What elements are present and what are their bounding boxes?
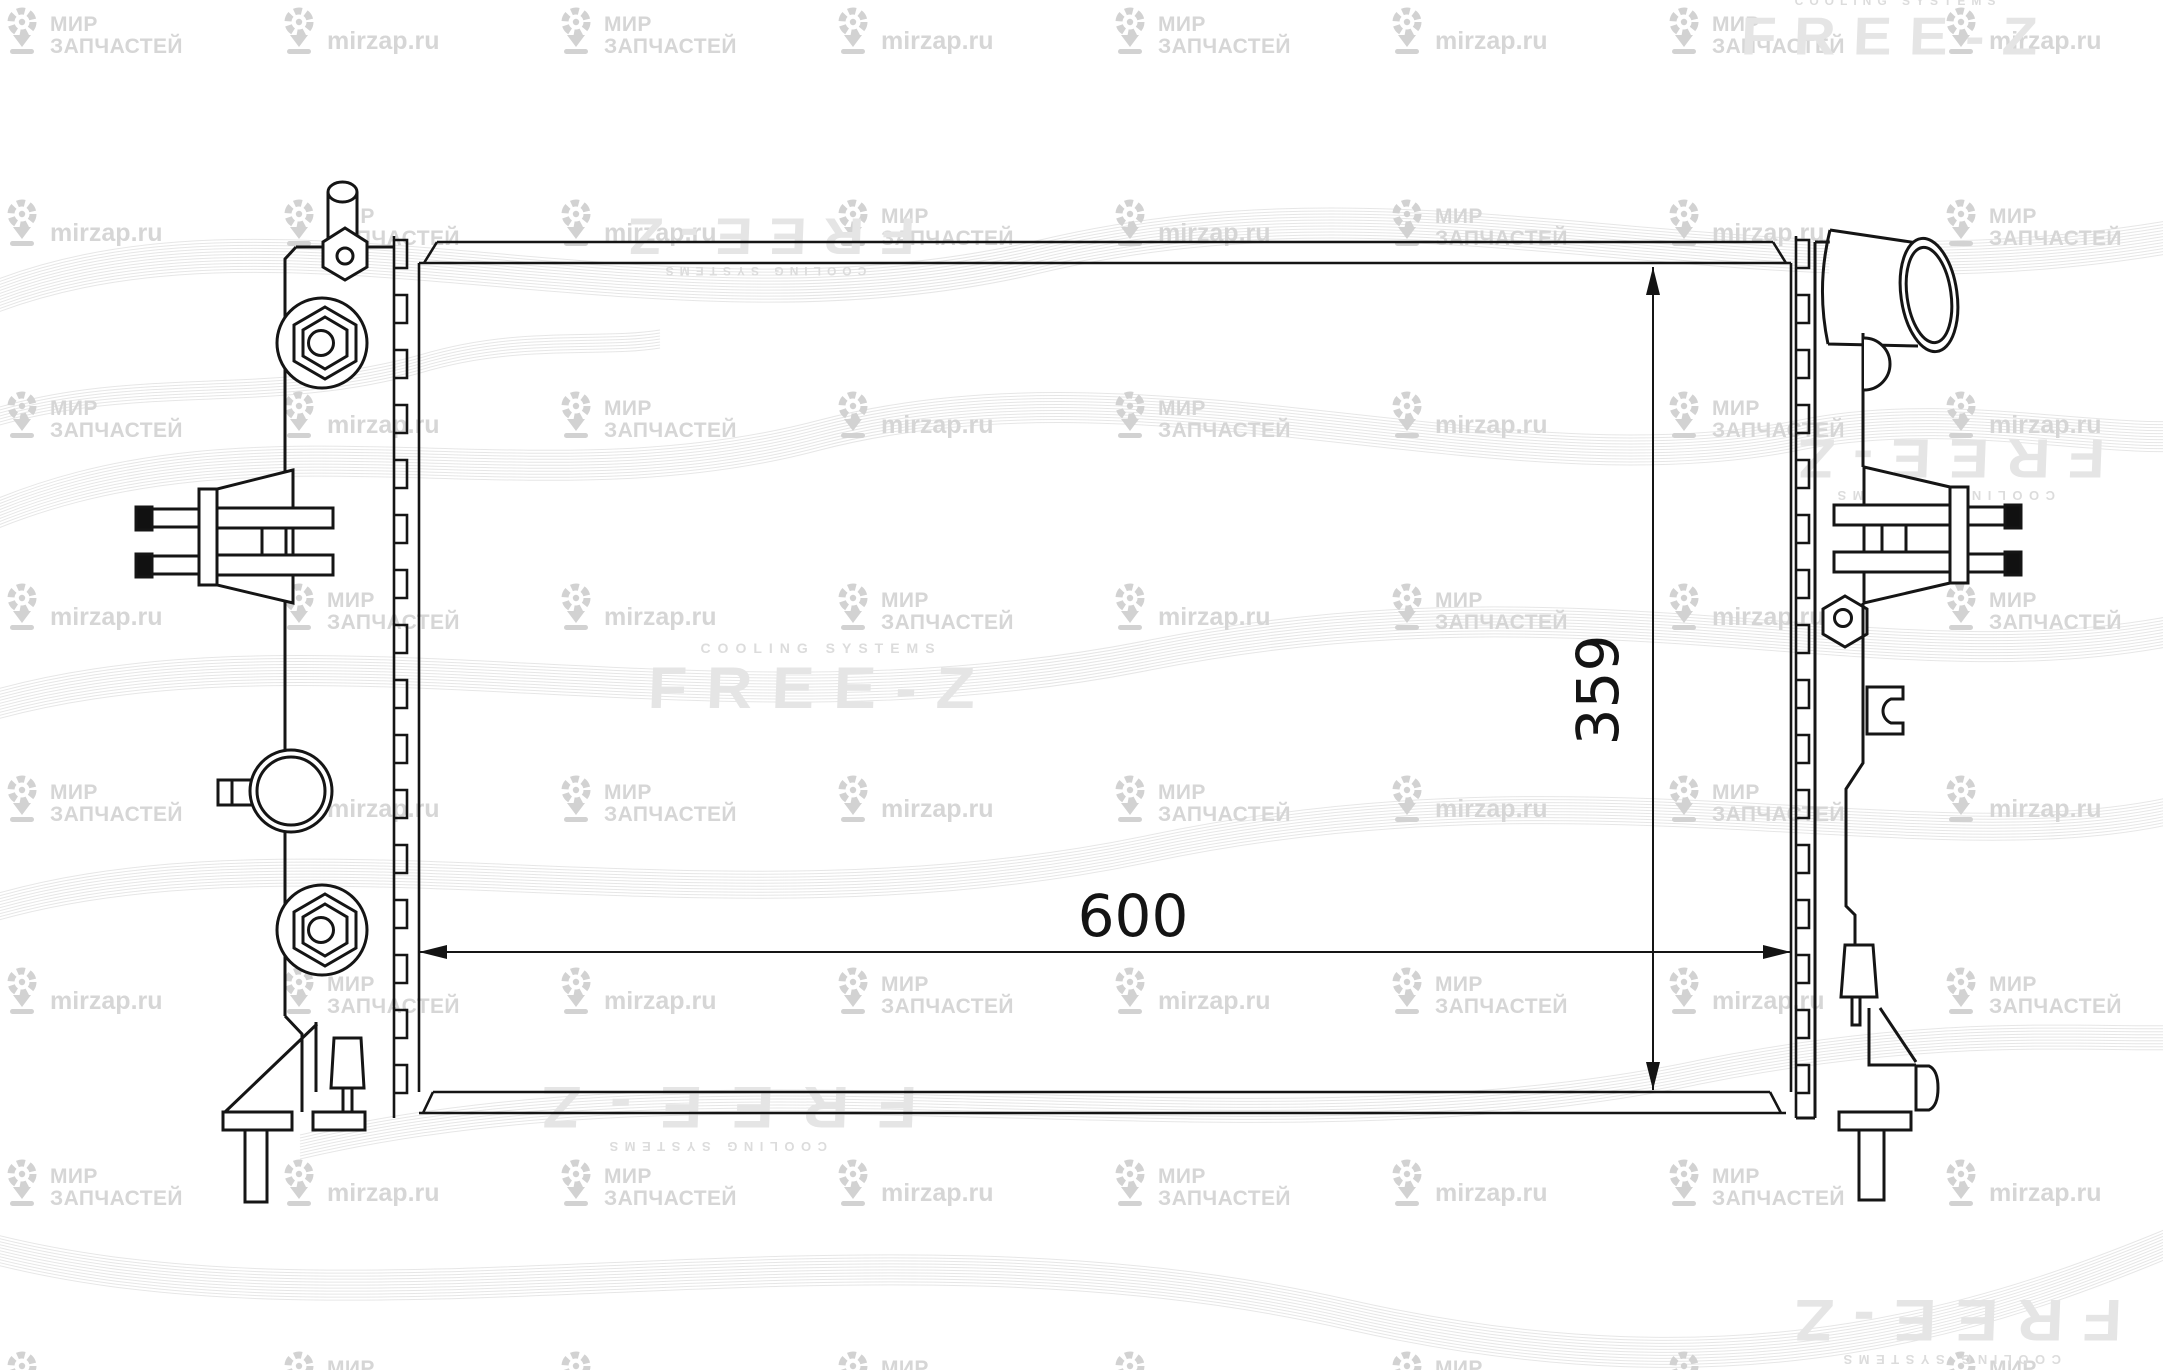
height-dimension: 359: [1564, 267, 1660, 1090]
core-left-crimp-teeth: [394, 240, 407, 1093]
width-dimension: 600: [419, 882, 1791, 959]
right-pipe-lower-tip: [2005, 552, 2021, 575]
inlet-pipe: [1822, 230, 1964, 355]
left-bottom-bracket: [223, 1016, 365, 1202]
left-locator-pin: [331, 1038, 364, 1088]
arrow-down-icon: [1646, 1062, 1660, 1090]
right-hex-boss: [1823, 596, 1867, 647]
left-pipe-upper: [151, 509, 199, 527]
left-tank: [136, 182, 394, 1202]
core-bottom-strip: [419, 1092, 1786, 1113]
right-locator-pin: [1841, 945, 1877, 997]
left-pipe-bracket: [136, 470, 333, 603]
right-hose-clip: [1867, 687, 1903, 734]
lower-hex-fitting: [277, 885, 367, 975]
right-bottom-bracket: [1839, 1008, 1938, 1200]
right-pipe-upper-tip: [2005, 505, 2021, 528]
arrow-up-icon: [1646, 267, 1660, 295]
left-round-port: [218, 750, 332, 832]
arrow-left-icon: [419, 945, 447, 959]
core-right-crimp-teeth: [1796, 240, 1809, 1093]
right-tank: [1796, 230, 2021, 1200]
right-mounting-leg: [1859, 1130, 1884, 1200]
width-dimension-label: 600: [1078, 882, 1189, 950]
radiator-technical-drawing: 600 359: [0, 0, 2163, 1370]
upper-hex-fitting: [277, 298, 367, 388]
right-pipe-upper: [1968, 507, 2005, 525]
height-dimension-label: 359: [1564, 635, 1632, 746]
radiator-drawing-page: МИРЗАПЧАСТЕЙmirzap.ruМИРЗАПЧАСТЕЙmirzap.…: [0, 0, 2163, 1370]
right-tank-edge-lower: [1846, 603, 1863, 945]
right-pipe-bracket: [1834, 467, 2021, 603]
core-top-strip: [419, 242, 1791, 263]
arrow-right-icon: [1763, 945, 1791, 959]
right-pipe-lower: [1968, 554, 2005, 572]
left-pipe-lower: [151, 556, 199, 574]
dimensions: 600 359: [419, 267, 1791, 1090]
left-pipe-lower-tip: [136, 554, 152, 577]
left-mounting-leg: [245, 1130, 267, 1202]
left-pipe-upper-tip: [136, 507, 152, 530]
